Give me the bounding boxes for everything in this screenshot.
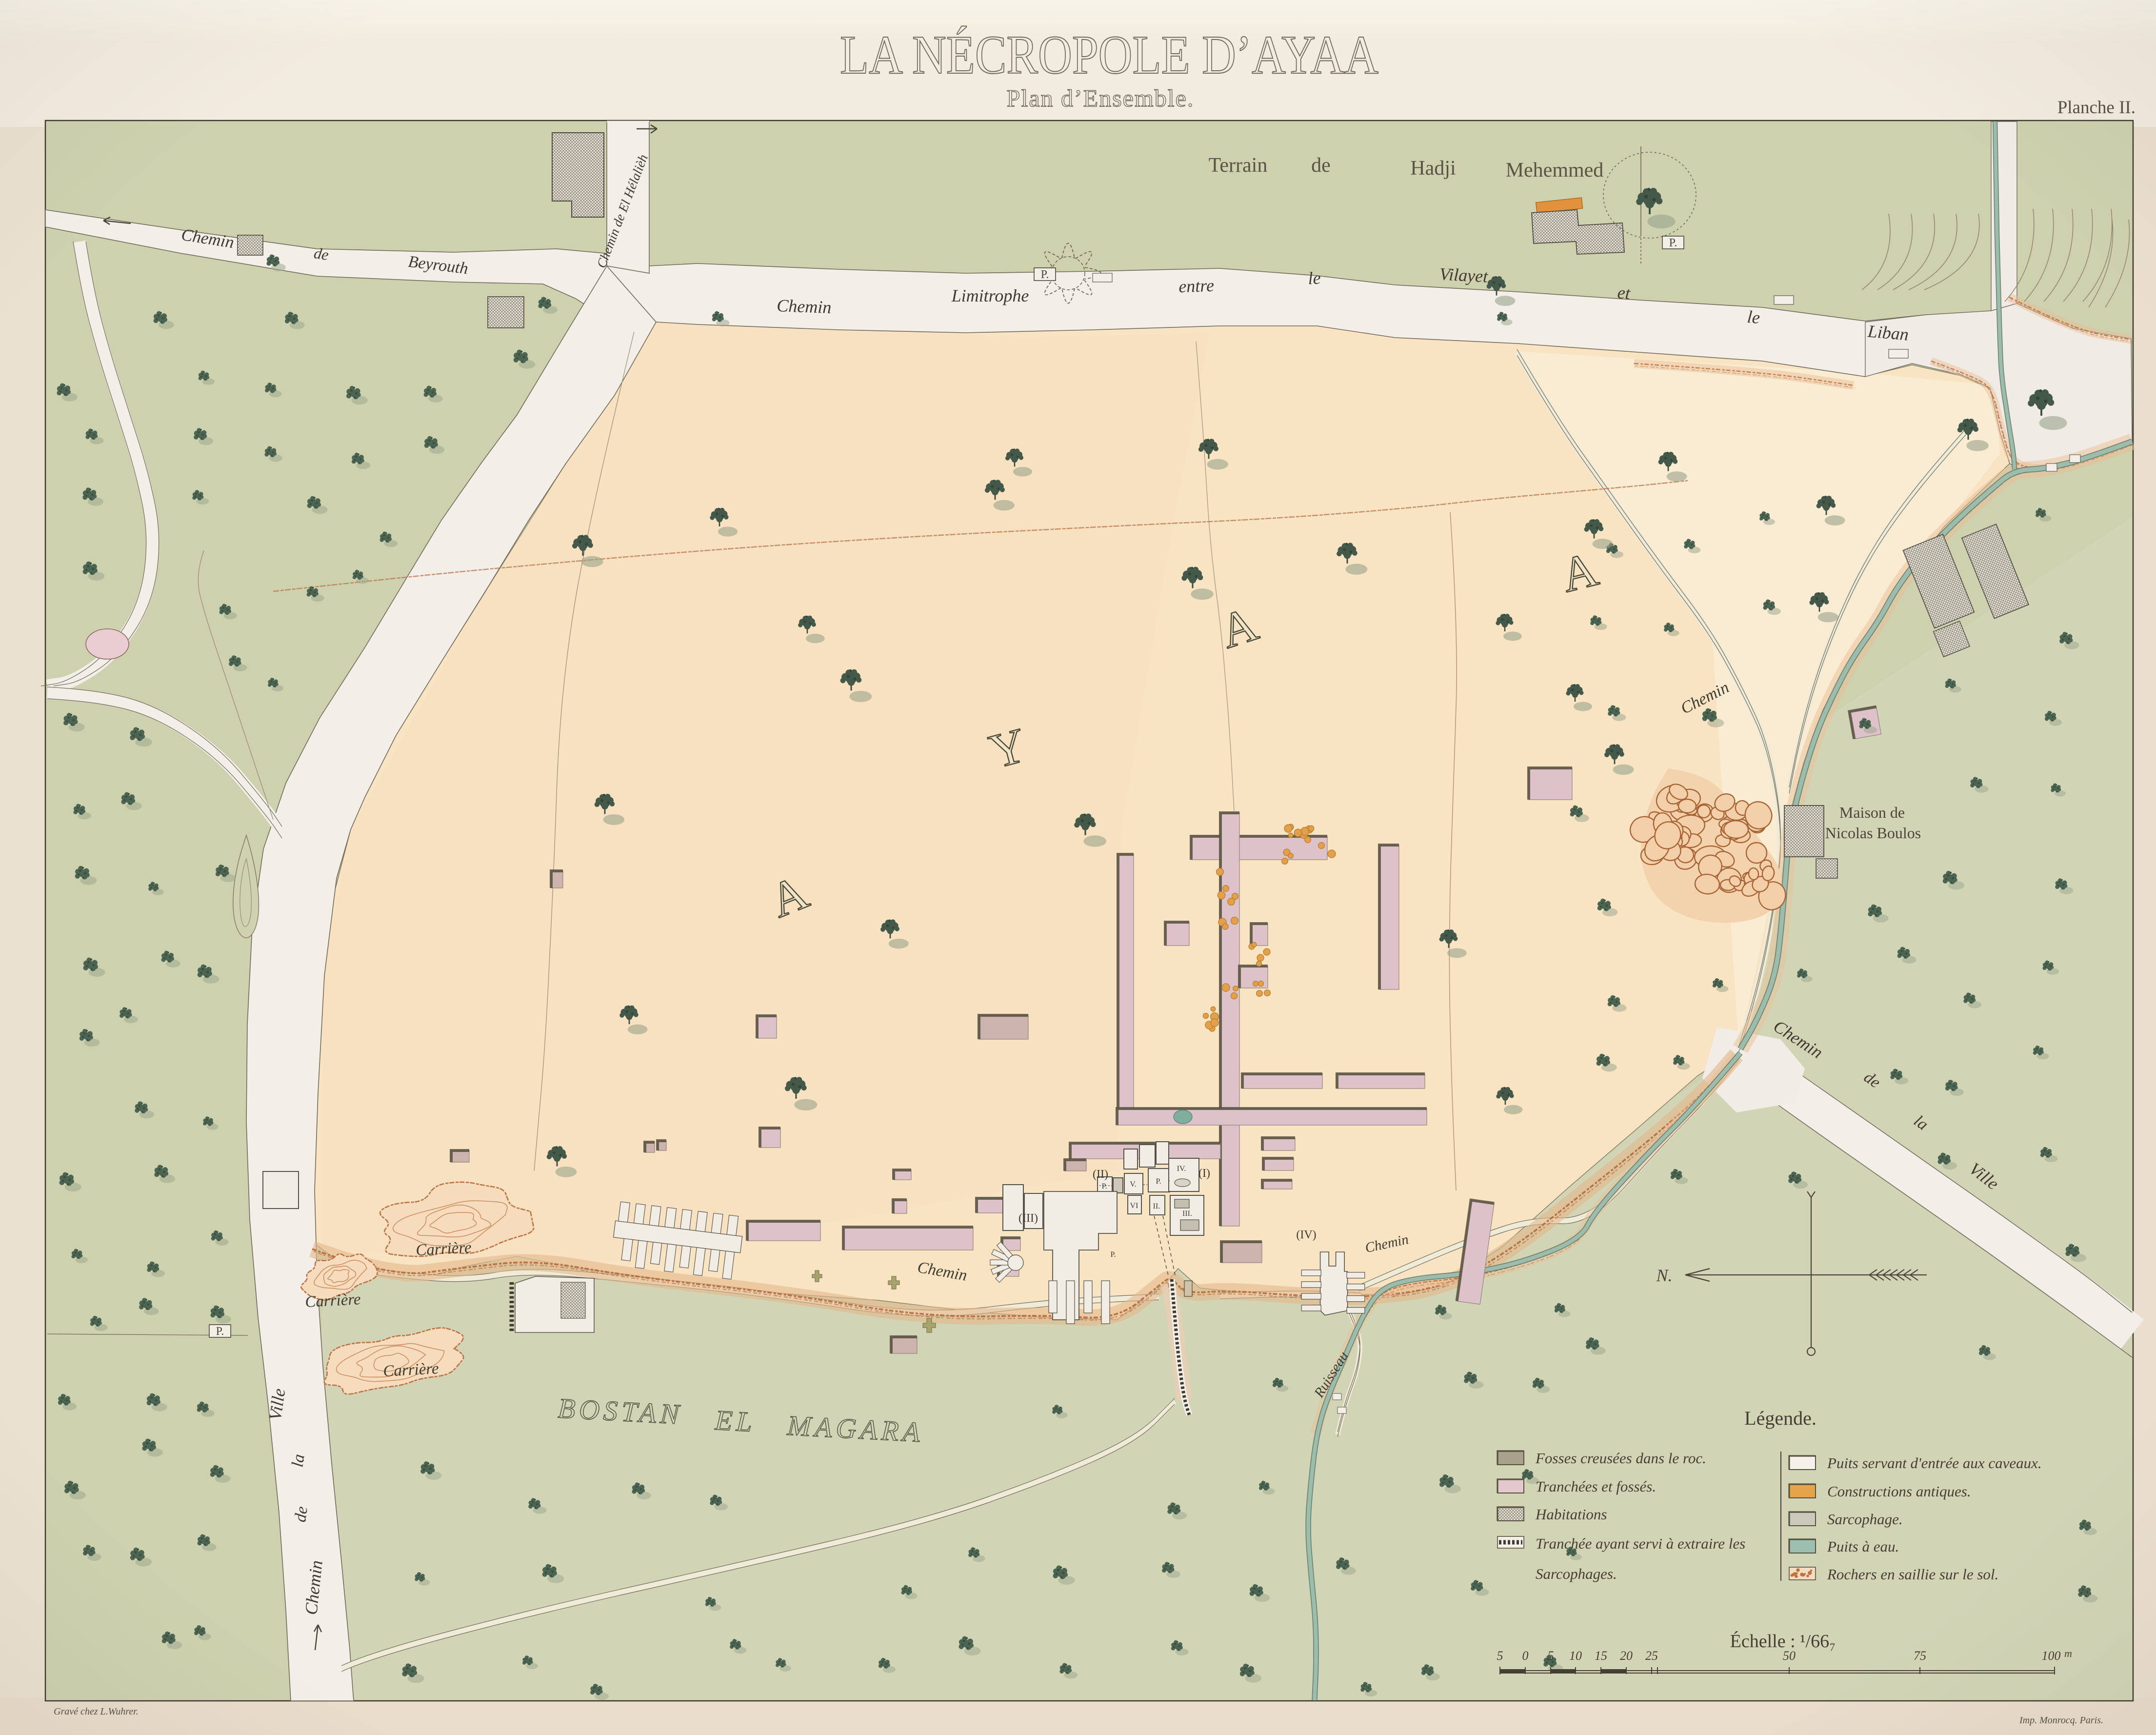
svg-text:Planche II.: Planche II.	[2057, 98, 2136, 118]
svg-text:Imp. Monrocq. Paris.: Imp. Monrocq. Paris.	[2019, 1715, 2103, 1726]
svg-text:Gravé chez L.Wuhrer.: Gravé chez L.Wuhrer.	[54, 1706, 139, 1717]
svg-text:Plan d’Ensemble.: Plan d’Ensemble.	[1007, 84, 1195, 112]
svg-text:LA NÉCROPOLE D’AYAA: LA NÉCROPOLE D’AYAA	[840, 25, 1378, 85]
